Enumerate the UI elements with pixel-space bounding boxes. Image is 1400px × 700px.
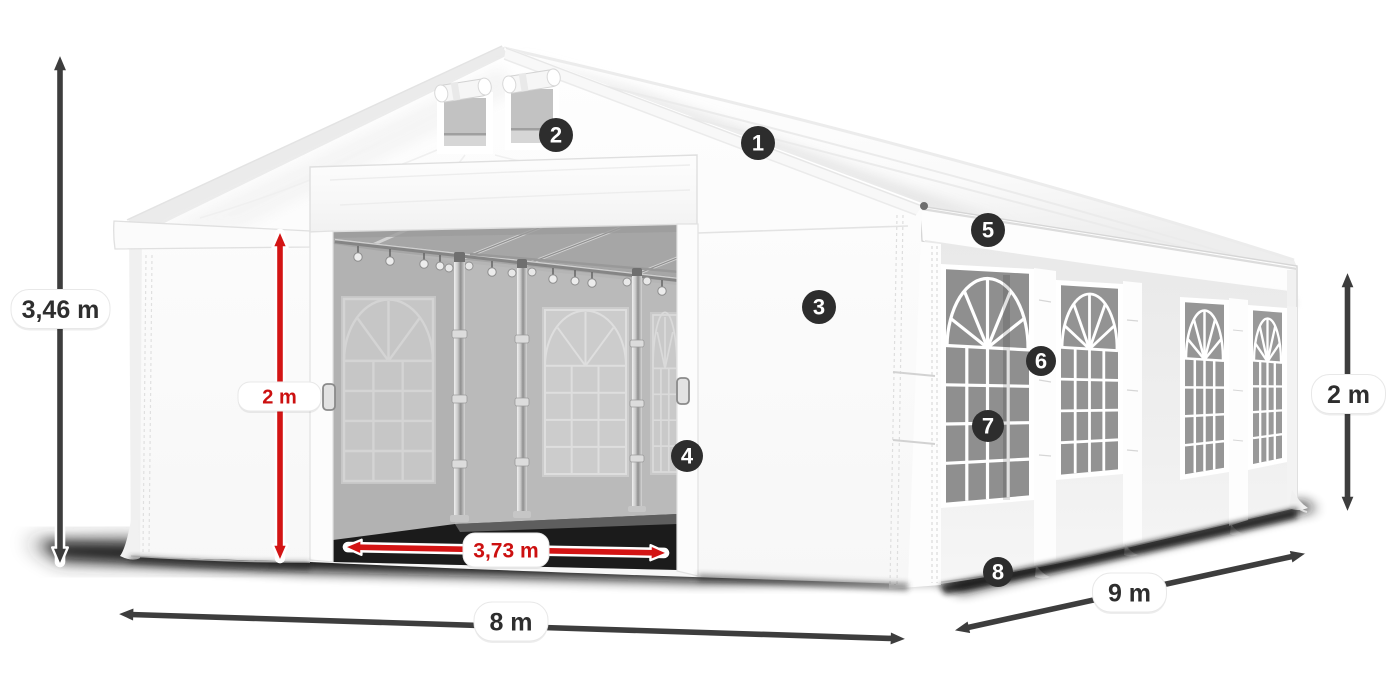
svg-text:3,73 m: 3,73 m [473,540,538,563]
svg-text:2 m: 2 m [262,387,296,409]
svg-text:2: 2 [550,123,562,148]
svg-text:7: 7 [982,414,994,439]
svg-text:3: 3 [813,295,825,320]
svg-text:3,46 m: 3,46 m [22,296,100,324]
svg-text:8 m: 8 m [489,608,532,636]
svg-text:5: 5 [982,218,994,243]
svg-text:8: 8 [992,560,1004,585]
svg-text:1: 1 [752,131,764,156]
svg-text:6: 6 [1035,349,1047,374]
svg-text:9 m: 9 m [1108,579,1151,607]
svg-text:2 m: 2 m [1327,381,1370,409]
svg-text:4: 4 [681,444,694,469]
